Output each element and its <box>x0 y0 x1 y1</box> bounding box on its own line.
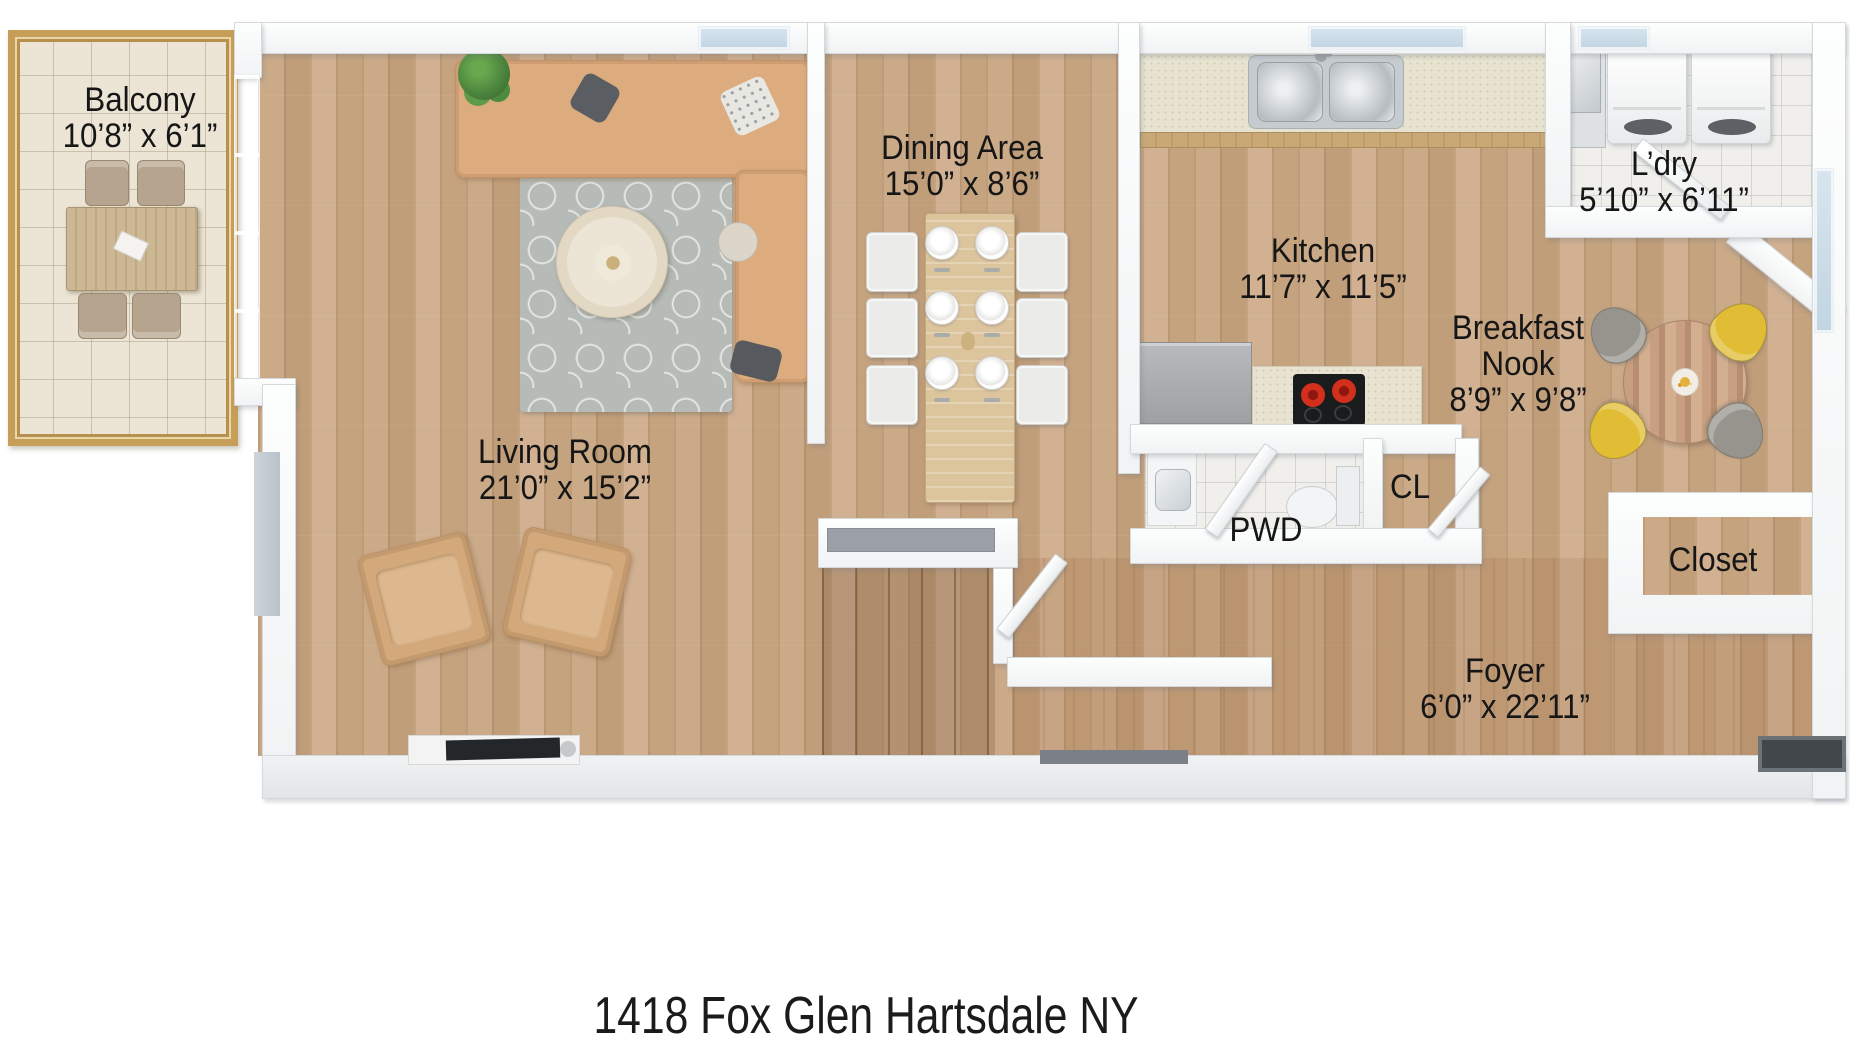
place-setting <box>925 291 959 325</box>
room-label-living-room: Living Room 21’0” x 15’2” <box>427 434 703 506</box>
room-dims: 8’9” x 9’8” <box>1421 382 1614 418</box>
living-dining-wall <box>807 22 825 444</box>
dining-chair <box>1016 298 1068 358</box>
cutlery <box>984 333 1000 337</box>
coffee-table-decor <box>595 245 631 281</box>
armchair-seat <box>518 546 615 639</box>
room-label-laundry: L’dry 5’10” x 6’11” <box>1572 146 1756 218</box>
pwd-sink-basin <box>1155 469 1191 511</box>
cutlery <box>984 398 1000 402</box>
room-label-closet: Closet <box>1639 542 1786 578</box>
kitchen-sink <box>1248 55 1404 129</box>
cutlery <box>984 268 1000 272</box>
dining-chair <box>1016 365 1068 425</box>
coffee-table <box>556 206 668 318</box>
sink-basin <box>1257 62 1323 122</box>
side-stool <box>718 222 758 262</box>
balcony-chair <box>132 293 181 339</box>
room-label-breakfast-nook: Breakfast Nook 8’9” x 9’8” <box>1421 310 1614 418</box>
place-setting <box>925 226 959 260</box>
food-icon <box>1680 377 1690 387</box>
balcony-chair <box>85 160 129 206</box>
burner-off <box>1334 405 1352 421</box>
room-name: Foyer <box>1367 653 1643 689</box>
window <box>1578 26 1650 50</box>
pwd-vanity <box>1147 452 1197 526</box>
washer-door <box>1624 119 1672 135</box>
room-name: Living Room <box>427 434 703 470</box>
room-dims: 11’7” x 11’5” <box>1185 269 1461 305</box>
nook-plate <box>1671 368 1699 396</box>
burner-off <box>1304 407 1322 423</box>
kitchen-laundry-wall <box>1545 22 1571 214</box>
room-name: Balcony <box>39 82 241 118</box>
refrigerator <box>1138 342 1252 424</box>
balcony-chair <box>78 293 127 339</box>
cutlery <box>934 268 950 272</box>
plan-title: 1418 Fox Glen Hartsdale NY <box>156 988 1576 1044</box>
cutlery <box>934 333 950 337</box>
room-label-dining-area: Dining Area 15’0” x 8’6” <box>824 130 1100 202</box>
washer-panel-line <box>1613 107 1681 110</box>
toilet-tank <box>1336 466 1360 526</box>
place-setting <box>975 356 1009 390</box>
pwd-north-wall <box>1130 424 1462 454</box>
place-setting <box>975 291 1009 325</box>
place-setting <box>925 356 959 390</box>
potted-plant <box>452 48 516 120</box>
room-label-foyer: Foyer 6’0” x 22’11” <box>1367 653 1643 725</box>
room-label-pwd: PWD <box>1220 512 1312 548</box>
kitchen-counter-edge <box>1140 132 1546 148</box>
dining-chair <box>866 232 918 292</box>
room-name: L’dry <box>1572 146 1756 182</box>
room-name: Breakfast Nook <box>1421 310 1614 382</box>
room-dims: 21’0” x 15’2” <box>427 470 703 506</box>
sink-basin <box>1329 62 1395 122</box>
room-name: Dining Area <box>824 130 1100 166</box>
tv-screen <box>446 738 560 761</box>
balcony-chair <box>137 160 185 206</box>
window <box>1814 168 1834 333</box>
window <box>1308 26 1466 50</box>
stair-railing-top <box>827 528 995 552</box>
room-dims: 6’0” x 22’11” <box>1367 689 1643 725</box>
room-name: PWD <box>1220 512 1312 548</box>
burner-on <box>1332 379 1356 403</box>
console-decor <box>560 741 576 757</box>
floor-plan: Balcony 10’8” x 6’1” Living Room 21’0” x… <box>0 0 1850 1046</box>
room-dims: 5’10” x 6’11” <box>1572 182 1756 218</box>
room-name: CL <box>1373 469 1447 505</box>
room-label-cl: CL <box>1373 469 1447 505</box>
burner-on <box>1301 383 1325 407</box>
left-wall-upper <box>234 22 262 78</box>
dryer-panel-line <box>1697 107 1765 110</box>
dining-chair <box>1016 232 1068 292</box>
cutlery <box>934 398 950 402</box>
entry-threshold <box>1040 750 1188 764</box>
dining-chair <box>866 365 918 425</box>
entry-south-wall <box>1007 657 1272 687</box>
room-name: Kitchen <box>1185 233 1461 269</box>
dryer <box>1691 46 1771 144</box>
staircase <box>822 568 995 755</box>
room-dims: 10’8” x 6’1” <box>39 118 241 154</box>
place-setting <box>975 226 1009 260</box>
room-label-balcony: Balcony 10’8” x 6’1” <box>39 82 241 154</box>
stair-railing-wall <box>818 518 1018 568</box>
washer <box>1607 46 1687 144</box>
dark-window-sill <box>1758 736 1846 772</box>
cooktop <box>1293 374 1365 426</box>
room-label-kitchen: Kitchen 11’7” x 11’5” <box>1185 233 1461 305</box>
leaning-glass-panel <box>254 452 280 616</box>
room-dims: 15’0” x 8’6” <box>824 166 1100 202</box>
dining-chair <box>866 298 918 358</box>
plant-foliage <box>458 48 510 100</box>
dining-kitchen-wall <box>1118 22 1140 474</box>
table-centerpiece <box>961 332 975 350</box>
window <box>698 26 790 50</box>
right-exterior-wall <box>1812 22 1846 799</box>
room-name: Closet <box>1639 542 1786 578</box>
armchair-seat <box>374 552 474 648</box>
dryer-door <box>1708 119 1756 135</box>
